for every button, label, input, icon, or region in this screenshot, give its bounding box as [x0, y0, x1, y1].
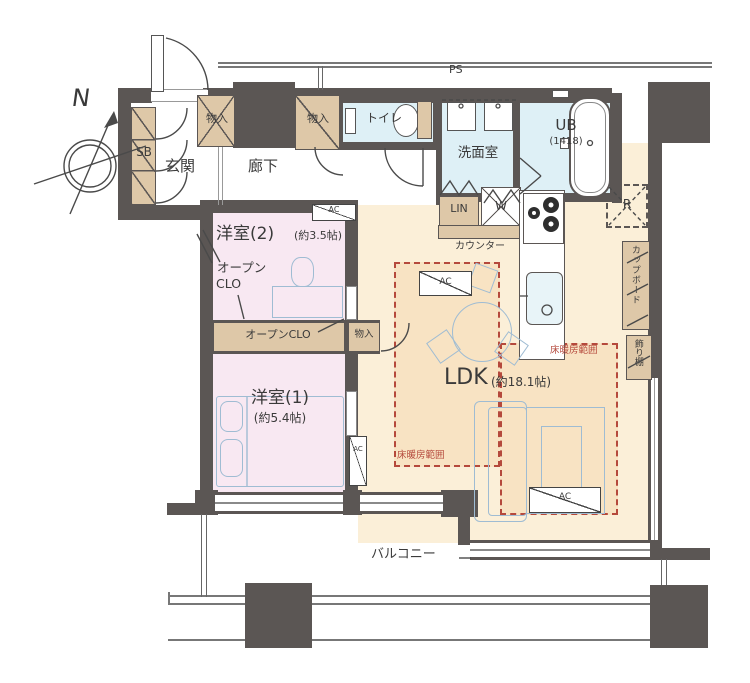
washroom-sink-left [447, 102, 476, 131]
bath-faucet [552, 90, 569, 98]
bedroom2-size-label: (約3.5帖) [294, 230, 342, 242]
open-closet-band-label: オープンCLO [222, 329, 334, 341]
bedroom2-label: 洋室(2) [216, 225, 274, 244]
toilet-tank [417, 101, 432, 139]
ps-line-2 [218, 66, 712, 68]
balcony-label: バルコニー [371, 548, 436, 562]
storage-label-hall: 物入 [296, 113, 340, 125]
bedroom1-window [215, 492, 343, 514]
wall-top-right-block [648, 82, 710, 143]
entrance-label: 玄関 [150, 158, 210, 175]
ldk-east-window [649, 378, 660, 540]
bedroom2-sliding-door [346, 286, 357, 320]
desk [272, 286, 343, 318]
unit-bath-size-label: (1418) [542, 136, 590, 147]
linen-label: LIN [440, 203, 478, 215]
wall-ldk-south-step [458, 490, 470, 545]
storage-label-entrance: 物入 [196, 113, 238, 125]
entrance-door-leaf [151, 35, 164, 92]
open-closet-line1-label: オープン [217, 261, 266, 275]
wall-washroom-ub-divider [513, 93, 520, 197]
washroom-label: 洗面室 [448, 146, 508, 161]
bedroom1-sliding-door [346, 391, 357, 436]
sofa-seat-line [488, 407, 527, 516]
bedroom1-label: 洋室(1) [230, 389, 330, 408]
floor-heating-label-living: 床暖房範囲 [550, 346, 598, 356]
balcony-pillar-right [650, 585, 708, 648]
ldk-label: LDK [444, 366, 488, 390]
wall-top-thick-block [233, 82, 295, 148]
washer-label: W [481, 200, 521, 213]
pillow-2 [220, 439, 243, 477]
cupboard-label: カップボード [629, 245, 639, 305]
kitchen-counter-ledge [438, 225, 520, 239]
toilet-basin [345, 108, 356, 134]
ac-label-ldk-top: AC [419, 278, 472, 288]
washroom-sink-right [484, 102, 513, 131]
ac-label-bedroom2: AC [312, 206, 356, 215]
wall-washroom-west [433, 93, 441, 150]
wall-entrance-south [118, 205, 213, 220]
desk-chair [291, 257, 314, 287]
stove [523, 193, 564, 244]
floor-heating-label-dining: 床暖房範囲 [397, 451, 445, 461]
balcony-connector [661, 559, 667, 586]
ps-line-1 [218, 62, 712, 64]
counter-label: カウンター [440, 241, 520, 252]
entrance-door-arc [166, 38, 208, 90]
display-shelf-label: 飾り棚 [632, 339, 642, 366]
refrigerator-label: R [606, 198, 648, 211]
balcony-pillar-left [245, 583, 312, 648]
shoe-box-label: SB [128, 146, 160, 159]
open-closet-line2-label: CLO [216, 277, 241, 291]
ldk-size-label: (約18.1帖) [491, 376, 551, 389]
bedroom1-size-label: (約5.4帖) [230, 412, 330, 425]
ac-label-ldk-bottom: AC [529, 493, 601, 503]
ac-label-bedroom1: AC [349, 446, 367, 454]
hallway-label: 廊下 [237, 158, 289, 175]
balcony-rail-end [168, 592, 170, 605]
floor-plan: N PS 玄関 廊下 SB 物入 物入 トイレ 洗面室 UB (1418) LI… [0, 0, 750, 683]
storage-label-ldk: 物入 [348, 330, 380, 340]
kitchen-sink [526, 272, 563, 325]
unit-bath-label: UB [546, 117, 586, 134]
balcony-divider [201, 514, 207, 597]
ac-unit-bedroom1 [349, 436, 367, 486]
wall-toilet-south [340, 142, 437, 150]
wall-rooms-west [200, 200, 213, 515]
bathtub-inner [574, 102, 606, 193]
ldk-south-window [470, 540, 650, 560]
ps-connector [318, 66, 323, 90]
ps-label: PS [449, 64, 463, 76]
north-label: N [70, 85, 92, 111]
toilet-label: トイレ [358, 112, 410, 125]
ldk-west-window [360, 492, 443, 514]
